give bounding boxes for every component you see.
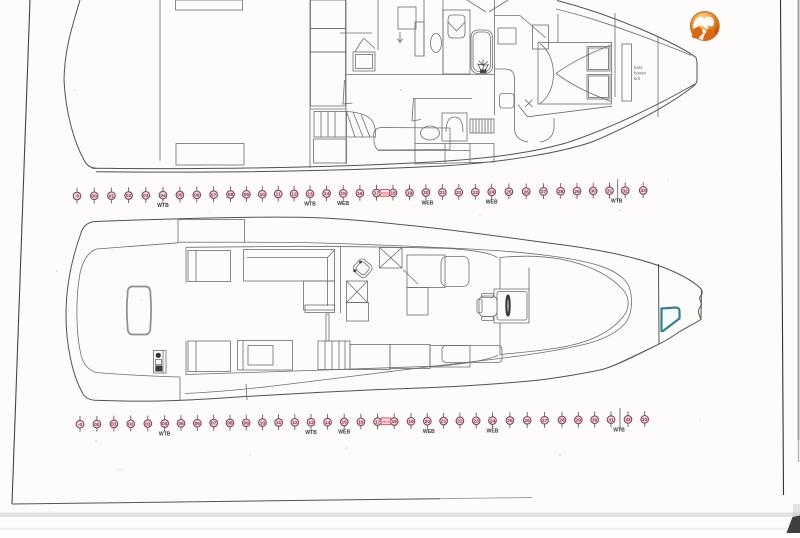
svg-text:12: 12 xyxy=(291,192,297,198)
svg-text:16: 16 xyxy=(358,420,364,426)
svg-text:23: 23 xyxy=(473,190,479,196)
svg-text:27: 27 xyxy=(541,189,547,195)
svg-text:21: 21 xyxy=(441,419,447,425)
svg-text:-0: -0 xyxy=(78,422,83,428)
svg-text:00: 00 xyxy=(94,422,100,428)
svg-text:33: 33 xyxy=(642,417,648,423)
svg-text:krit: krit xyxy=(634,76,641,81)
svg-text:21: 21 xyxy=(440,190,446,196)
svg-text:22: 22 xyxy=(456,190,462,196)
svg-text:25: 25 xyxy=(507,418,513,424)
svg-text:WEB: WEB xyxy=(421,200,433,206)
svg-text:WEB: WEB xyxy=(381,191,389,195)
svg-text:WTB: WTB xyxy=(613,427,625,433)
svg-text:30: 30 xyxy=(592,417,598,423)
svg-text:31: 31 xyxy=(608,417,614,423)
svg-text:10: 10 xyxy=(260,420,266,426)
svg-text:29: 29 xyxy=(574,189,580,195)
svg-text:17: 17 xyxy=(375,419,381,425)
svg-text:24: 24 xyxy=(489,190,495,196)
svg-text:19: 19 xyxy=(408,419,414,425)
svg-text:kast: kast xyxy=(634,65,643,70)
svg-text:19: 19 xyxy=(407,190,413,196)
svg-text:32: 32 xyxy=(623,188,629,194)
svg-text:WTB: WTB xyxy=(157,203,169,209)
svg-text:26: 26 xyxy=(525,418,531,424)
svg-text:13: 13 xyxy=(307,191,313,197)
svg-text:11: 11 xyxy=(276,192,281,198)
svg-text:30: 30 xyxy=(591,189,597,195)
svg-text:20: 20 xyxy=(423,190,429,196)
svg-text:12: 12 xyxy=(292,420,298,426)
svg-text:26: 26 xyxy=(524,189,530,195)
svg-text:11: 11 xyxy=(276,420,281,426)
svg-text:boven: boven xyxy=(634,71,647,76)
svg-text:07: 07 xyxy=(211,192,217,198)
svg-text:05: 05 xyxy=(177,193,183,199)
svg-text:29: 29 xyxy=(576,418,582,424)
svg-text:23: 23 xyxy=(474,419,480,425)
svg-text:16: 16 xyxy=(357,191,363,197)
svg-text:01: 01 xyxy=(109,193,115,199)
svg-text:00: 00 xyxy=(92,194,98,200)
svg-text:27: 27 xyxy=(542,418,548,424)
svg-text:24: 24 xyxy=(490,418,496,424)
svg-text:WTB: WTB xyxy=(159,431,171,437)
svg-text:10: 10 xyxy=(260,192,266,198)
svg-text:WTB: WTB xyxy=(305,430,317,436)
svg-text:WTB: WTB xyxy=(304,202,316,208)
svg-text:08: 08 xyxy=(228,192,234,198)
svg-text:09: 09 xyxy=(244,421,250,427)
svg-text:WEB: WEB xyxy=(487,428,499,434)
svg-text:25: 25 xyxy=(506,189,512,195)
svg-text:05: 05 xyxy=(178,421,184,427)
svg-text:13: 13 xyxy=(308,420,314,426)
svg-text:04: 04 xyxy=(160,193,166,199)
svg-text:32: 32 xyxy=(625,417,631,423)
svg-text:17: 17 xyxy=(374,191,380,197)
svg-text:14: 14 xyxy=(325,420,331,426)
svg-text:WEB: WEB xyxy=(486,200,498,206)
svg-text:03: 03 xyxy=(143,193,149,199)
svg-text:06: 06 xyxy=(194,193,200,199)
svg-text:WEB: WEB xyxy=(337,201,349,207)
svg-text:18: 18 xyxy=(390,191,396,197)
svg-text:28: 28 xyxy=(559,418,565,424)
svg-text:WTB: WTB xyxy=(611,199,623,205)
svg-text:14: 14 xyxy=(324,191,330,197)
svg-text:22: 22 xyxy=(457,419,463,425)
svg-text:06: 06 xyxy=(195,421,201,427)
svg-text:WEB: WEB xyxy=(382,420,390,424)
svg-text:07: 07 xyxy=(211,421,217,427)
svg-text:18: 18 xyxy=(392,419,398,425)
svg-text:20: 20 xyxy=(425,419,431,425)
svg-text:01: 01 xyxy=(111,422,117,428)
svg-text:15: 15 xyxy=(341,191,347,197)
svg-text:15: 15 xyxy=(342,420,348,426)
svg-text:02: 02 xyxy=(126,193,132,199)
svg-text:09: 09 xyxy=(244,192,250,198)
svg-text:33: 33 xyxy=(641,188,647,194)
svg-text:31: 31 xyxy=(607,188,613,194)
svg-text:WEB: WEB xyxy=(338,430,350,436)
svg-text:28: 28 xyxy=(558,189,564,195)
svg-text:-0: -0 xyxy=(75,194,80,200)
svg-text:08: 08 xyxy=(227,421,233,427)
svg-text:04: 04 xyxy=(162,421,168,427)
svg-text:03: 03 xyxy=(145,421,151,427)
svg-text:02: 02 xyxy=(128,422,134,428)
svg-text:WEB: WEB xyxy=(423,429,435,435)
